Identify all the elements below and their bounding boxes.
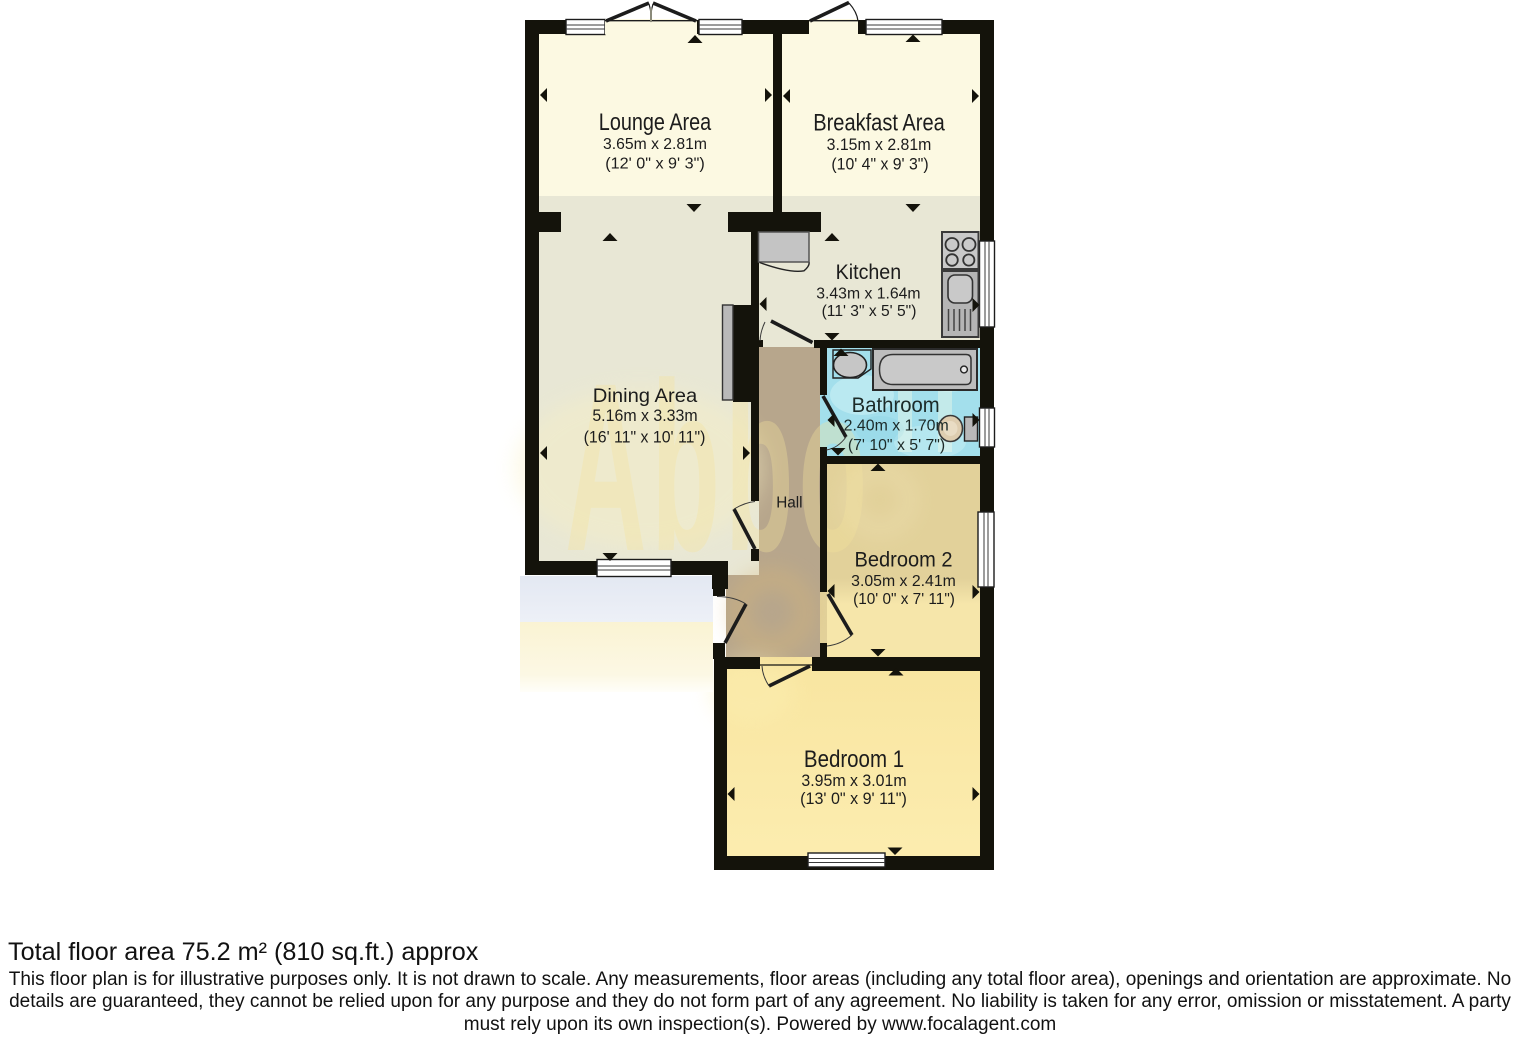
svg-text:Total floor area 75.2 m² (810: Total floor area 75.2 m² (810 sq.ft.) ap… <box>8 938 479 966</box>
svg-text:Lounge Area: Lounge Area <box>599 108 712 135</box>
svg-text:Kitchen: Kitchen <box>836 260 901 284</box>
svg-text:Bathroom: Bathroom <box>852 393 940 417</box>
svg-text:Breakfast Area: Breakfast Area <box>813 109 945 136</box>
svg-text:(10' 4" x 9' 3"): (10' 4" x 9' 3") <box>831 155 928 173</box>
svg-text:Hall: Hall <box>776 494 802 511</box>
svg-text:3.65m x 2.81m: 3.65m x 2.81m <box>603 136 707 153</box>
svg-text:Dining Area: Dining Area <box>593 385 698 407</box>
svg-text:details are guaranteed, they c: details are guaranteed, they cannot be r… <box>9 991 1511 1012</box>
svg-text:(11' 3" x 5' 5"): (11' 3" x 5' 5") <box>822 303 917 320</box>
svg-text:3.95m x 3.01m: 3.95m x 3.01m <box>801 772 906 790</box>
svg-text:Bedroom 1: Bedroom 1 <box>804 745 904 772</box>
svg-text:(10' 0" x 7' 11"): (10' 0" x 7' 11") <box>853 591 955 608</box>
svg-text:3.43m x 1.64m: 3.43m x 1.64m <box>816 285 920 302</box>
svg-text:(12' 0" x 9' 3"): (12' 0" x 9' 3") <box>605 155 704 173</box>
svg-text:Bedroom 2: Bedroom 2 <box>855 548 953 572</box>
svg-text:(7' 10" x 5' 7"): (7' 10" x 5' 7") <box>848 437 945 454</box>
svg-text:5.16m x 3.33m: 5.16m x 3.33m <box>592 407 697 426</box>
svg-text:This floor plan is for illustr: This floor plan is for illustrative purp… <box>9 969 1511 990</box>
svg-text:3.05m x 2.41m: 3.05m x 2.41m <box>851 573 956 590</box>
svg-text:must rely upon its own inspect: must rely upon its own inspection(s). Po… <box>464 1014 1056 1035</box>
svg-text:(16' 11" x 10' 11"): (16' 11" x 10' 11") <box>584 428 706 447</box>
svg-text:3.15m x 2.81m: 3.15m x 2.81m <box>827 136 932 154</box>
svg-text:2.40m x 1.70m: 2.40m x 1.70m <box>844 418 949 435</box>
svg-text:(13' 0" x 9' 11"): (13' 0" x 9' 11") <box>800 790 907 808</box>
